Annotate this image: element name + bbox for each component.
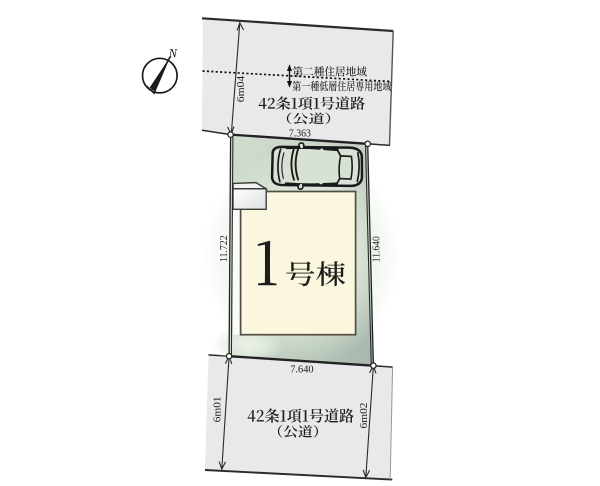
svg-text:11.722: 11.722 [219, 235, 230, 262]
svg-text:6m04: 6m04 [235, 75, 247, 102]
svg-text:7.640: 7.640 [290, 364, 313, 375]
svg-text:11.640: 11.640 [372, 236, 383, 262]
svg-text:N: N [168, 47, 178, 61]
svg-text:6m02: 6m02 [358, 403, 370, 429]
svg-text:6m01: 6m01 [212, 396, 224, 422]
svg-text:7.363: 7.363 [289, 129, 311, 140]
